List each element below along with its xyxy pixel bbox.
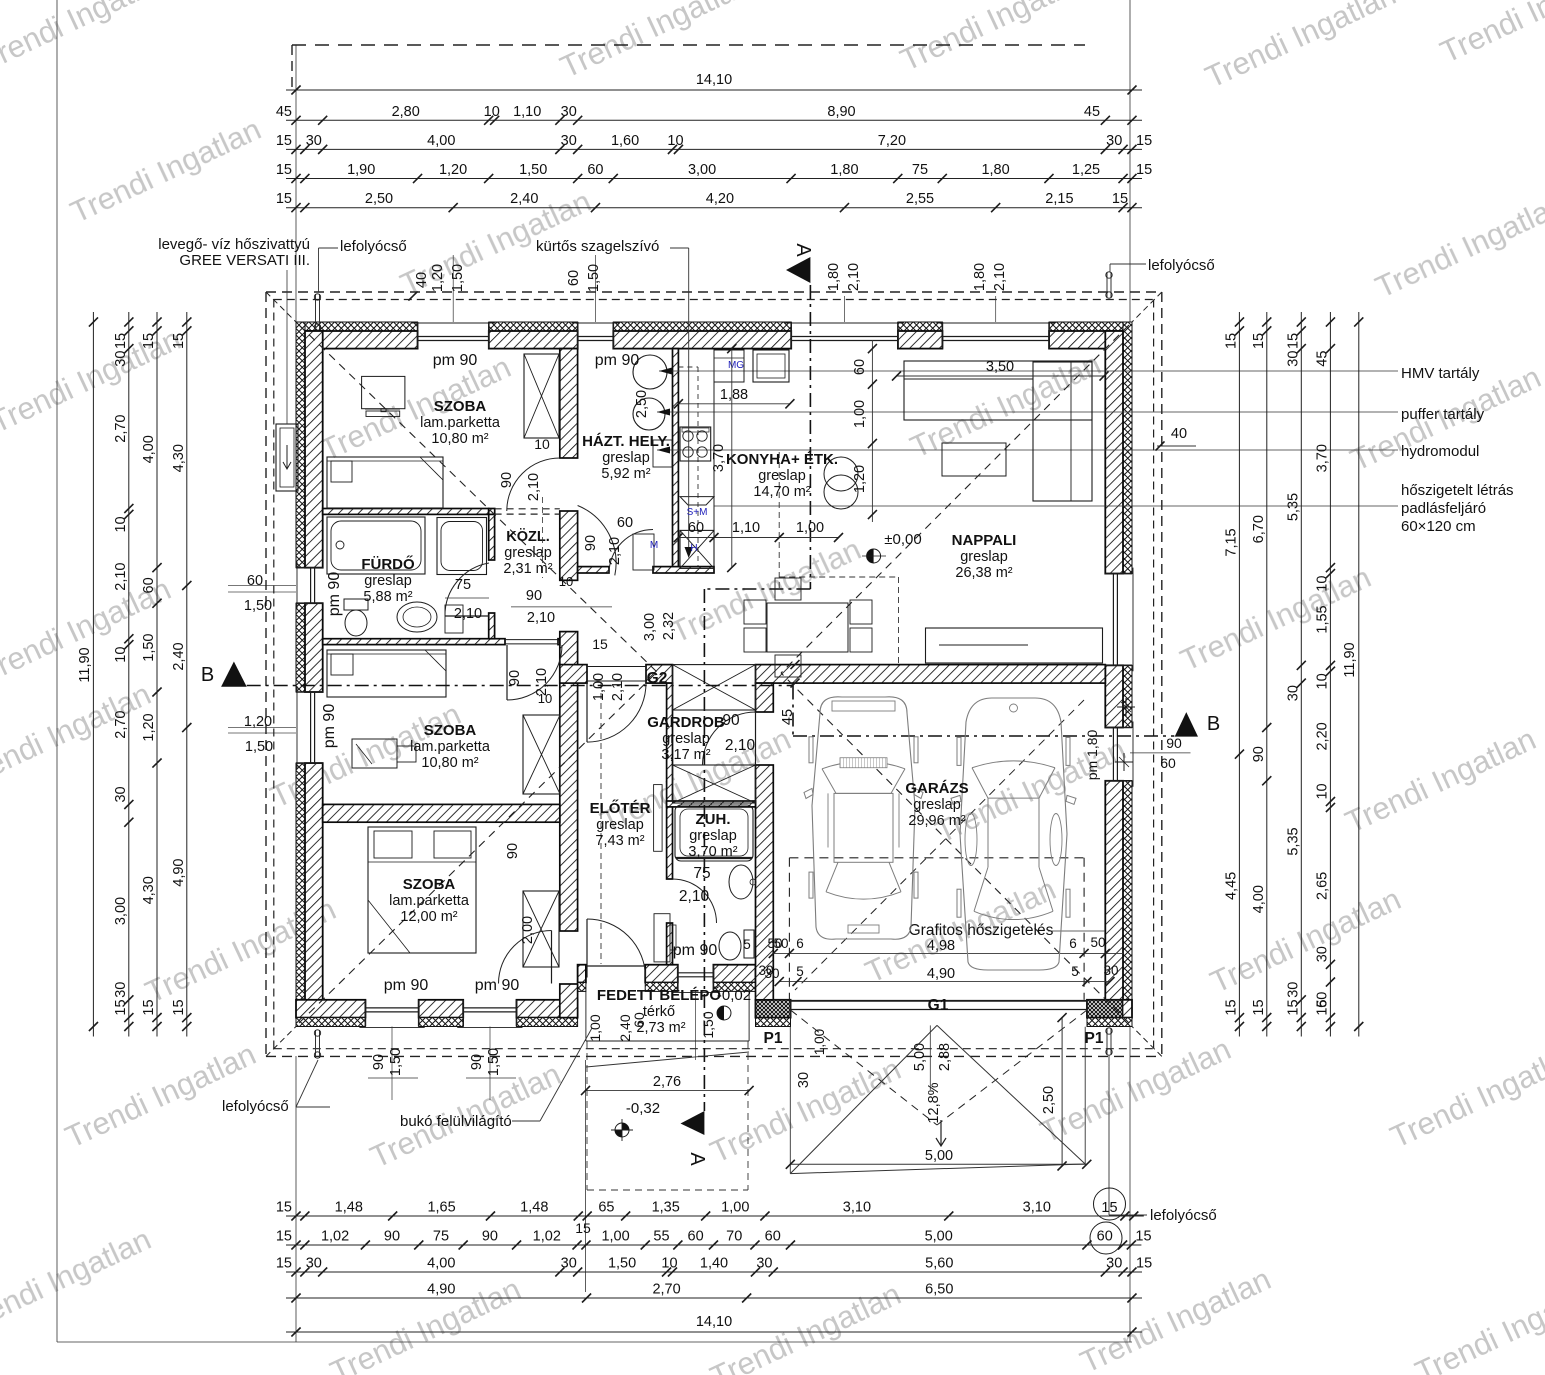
svg-text:2,10: 2,10: [607, 537, 623, 565]
svg-text:2,10: 2,10: [454, 606, 482, 622]
svg-text:B: B: [1207, 713, 1220, 735]
svg-text:2,70: 2,70: [652, 1282, 680, 1298]
svg-text:29,96 m²: 29,96 m²: [908, 813, 965, 829]
svg-text:A: A: [792, 243, 814, 257]
svg-text:2,10: 2,10: [679, 888, 710, 905]
svg-text:greslap: greslap: [596, 817, 644, 833]
svg-text:3,10: 3,10: [1023, 1200, 1051, 1216]
svg-text:2,40: 2,40: [171, 642, 187, 670]
svg-text:15: 15: [276, 1256, 292, 1272]
svg-text:60: 60: [1097, 1229, 1113, 1245]
svg-text:2,10: 2,10: [725, 737, 756, 754]
svg-text:30: 30: [764, 966, 779, 981]
svg-text:30: 30: [561, 104, 577, 120]
svg-text:levegő- víz hőszivattyú: levegő- víz hőszivattyú: [158, 236, 310, 253]
svg-text:1,00: 1,00: [812, 1029, 827, 1055]
svg-text:55: 55: [653, 1229, 669, 1245]
svg-text:2,50: 2,50: [1041, 1086, 1057, 1114]
svg-text:1,02: 1,02: [321, 1229, 349, 1245]
svg-text:15: 15: [592, 636, 608, 652]
svg-text:5,35: 5,35: [1285, 827, 1301, 855]
svg-text:pm 90: pm 90: [321, 704, 338, 749]
svg-text:1,80: 1,80: [972, 263, 988, 291]
svg-text:5: 5: [796, 964, 804, 979]
svg-text:15: 15: [141, 333, 157, 349]
svg-text:greslap: greslap: [662, 731, 710, 747]
svg-text:2,50: 2,50: [634, 390, 650, 418]
svg-text:2,10: 2,10: [992, 263, 1008, 291]
svg-text:HÁZT. HELY.: HÁZT. HELY.: [582, 433, 670, 450]
svg-text:45: 45: [1084, 104, 1100, 120]
svg-text:2,50: 2,50: [365, 191, 393, 207]
svg-text:4,30: 4,30: [171, 444, 187, 472]
svg-text:3,00: 3,00: [113, 897, 129, 925]
svg-text:1,50: 1,50: [519, 162, 547, 178]
svg-text:75: 75: [433, 1229, 449, 1245]
svg-text:2,20: 2,20: [1314, 722, 1330, 750]
svg-text:8,90: 8,90: [827, 104, 855, 120]
svg-text:30: 30: [1285, 982, 1301, 998]
svg-text:10: 10: [534, 436, 550, 452]
svg-text:4,00: 4,00: [427, 133, 455, 149]
svg-text:±0,00: ±0,00: [884, 531, 921, 548]
svg-text:2,10: 2,10: [526, 473, 542, 501]
svg-text:90: 90: [505, 843, 521, 859]
svg-text:GARDROB: GARDROB: [647, 714, 725, 731]
svg-text:10: 10: [1314, 783, 1330, 799]
svg-text:10: 10: [113, 647, 129, 663]
svg-text:14,70 m²: 14,70 m²: [753, 484, 810, 500]
svg-text:3,50: 3,50: [986, 359, 1014, 375]
svg-text:pm 90: pm 90: [326, 572, 343, 617]
svg-text:90: 90: [482, 1229, 498, 1245]
svg-text:1,02: 1,02: [533, 1229, 561, 1245]
svg-text:pm 90: pm 90: [595, 352, 640, 369]
svg-text:1,35: 1,35: [652, 1200, 680, 1216]
svg-text:SZOBA: SZOBA: [403, 876, 456, 893]
svg-text:12,8%: 12,8%: [926, 1082, 942, 1123]
svg-text:1,00: 1,00: [796, 520, 824, 536]
svg-text:NAPPALI: NAPPALI: [952, 532, 1017, 549]
svg-text:15: 15: [113, 333, 129, 349]
svg-text:15: 15: [1223, 999, 1239, 1015]
svg-text:30: 30: [306, 1256, 322, 1272]
svg-text:1,50: 1,50: [141, 633, 157, 661]
svg-text:2,32: 2,32: [661, 612, 677, 640]
svg-text:15: 15: [113, 999, 129, 1015]
svg-text:3,70: 3,70: [711, 444, 727, 472]
svg-text:1,00: 1,00: [852, 400, 868, 428]
svg-text:30: 30: [1314, 946, 1330, 962]
svg-text:15: 15: [1285, 333, 1301, 349]
svg-text:26,38 m²: 26,38 m²: [955, 565, 1012, 581]
svg-text:15: 15: [1136, 1256, 1152, 1272]
svg-text:45: 45: [1314, 351, 1330, 367]
svg-text:1,65: 1,65: [427, 1200, 455, 1216]
svg-text:1,90: 1,90: [347, 162, 375, 178]
svg-text:30: 30: [1106, 133, 1122, 149]
svg-text:1,20: 1,20: [244, 714, 272, 730]
svg-text:5,60: 5,60: [925, 1256, 953, 1272]
svg-text:4,90: 4,90: [927, 966, 955, 982]
svg-text:H: H: [690, 543, 697, 554]
svg-text:10: 10: [1314, 673, 1330, 689]
svg-text:Grafitos hőszigetelés: Grafitos hőszigetelés: [909, 922, 1054, 939]
svg-text:SZOBA: SZOBA: [424, 722, 477, 739]
svg-text:15: 15: [575, 1220, 591, 1236]
svg-text:60: 60: [852, 359, 868, 375]
svg-text:térkő: térkő: [643, 1004, 675, 1020]
svg-text:60: 60: [765, 1229, 781, 1245]
svg-text:11,90: 11,90: [1342, 642, 1358, 677]
svg-text:1,20: 1,20: [439, 162, 467, 178]
svg-text:15: 15: [1285, 999, 1301, 1015]
svg-text:60: 60: [247, 573, 263, 589]
svg-text:2,55: 2,55: [906, 191, 934, 207]
svg-text:1,40: 1,40: [700, 1256, 728, 1272]
svg-text:1,88: 1,88: [720, 387, 748, 403]
svg-text:10: 10: [484, 104, 500, 120]
svg-text:10: 10: [113, 516, 129, 532]
svg-text:15: 15: [1314, 999, 1330, 1015]
svg-text:1,50: 1,50: [608, 1256, 636, 1272]
svg-text:1,60: 1,60: [611, 133, 639, 149]
svg-text:10: 10: [1314, 576, 1330, 592]
svg-text:5,92 m²: 5,92 m²: [601, 466, 650, 482]
svg-text:70: 70: [726, 1229, 742, 1245]
svg-text:75: 75: [912, 162, 928, 178]
svg-text:S+M: S+M: [687, 507, 708, 518]
svg-text:lefolyócső: lefolyócső: [1150, 1207, 1217, 1224]
svg-text:75: 75: [455, 577, 471, 593]
svg-text:puffer tartály: puffer tartály: [1401, 406, 1485, 423]
svg-text:2,10: 2,10: [527, 610, 555, 626]
svg-text:pm 90: pm 90: [433, 352, 478, 369]
svg-text:60: 60: [631, 1012, 647, 1028]
svg-text:15: 15: [171, 333, 187, 349]
svg-text:40: 40: [414, 272, 430, 288]
svg-text:4,00: 4,00: [141, 435, 157, 463]
svg-text:1,50: 1,50: [244, 598, 272, 614]
svg-text:75: 75: [693, 865, 710, 882]
svg-text:60: 60: [1160, 755, 1176, 771]
svg-text:30: 30: [306, 133, 322, 149]
svg-text:greslap: greslap: [364, 573, 412, 589]
svg-text:1,10: 1,10: [513, 104, 541, 120]
svg-text:1,80: 1,80: [981, 162, 1009, 178]
svg-text:1,80: 1,80: [830, 162, 858, 178]
svg-text:2,80: 2,80: [392, 104, 420, 120]
svg-text:60: 60: [141, 577, 157, 593]
svg-text:60×120 cm: 60×120 cm: [1401, 518, 1476, 535]
svg-text:3,10: 3,10: [843, 1200, 871, 1216]
svg-text:15: 15: [171, 999, 187, 1015]
svg-text:1,20: 1,20: [141, 713, 157, 741]
svg-text:30: 30: [796, 1072, 812, 1088]
svg-text:15: 15: [1101, 1200, 1117, 1216]
svg-text:3,00: 3,00: [688, 162, 716, 178]
svg-text:2,15: 2,15: [1045, 191, 1073, 207]
svg-text:SZOBA: SZOBA: [434, 398, 487, 415]
svg-text:7,43 m²: 7,43 m²: [595, 833, 644, 849]
svg-text:5,00: 5,00: [925, 1148, 953, 1164]
svg-text:1,55: 1,55: [1314, 605, 1330, 633]
svg-text:30: 30: [756, 1256, 772, 1272]
svg-text:2,76: 2,76: [653, 1074, 681, 1090]
svg-text:3,17 m²: 3,17 m²: [661, 747, 710, 763]
svg-text:45: 45: [780, 709, 796, 725]
svg-text:65: 65: [598, 1200, 614, 1216]
svg-text:14,10: 14,10: [696, 1314, 732, 1330]
svg-text:15: 15: [1112, 191, 1128, 207]
svg-text:90: 90: [1166, 735, 1182, 751]
svg-text:pm 90: pm 90: [673, 942, 718, 959]
svg-text:5,00: 5,00: [912, 1043, 928, 1071]
svg-text:2,65: 2,65: [1314, 872, 1330, 900]
svg-text:greslap: greslap: [758, 468, 806, 484]
svg-text:5,35: 5,35: [1285, 493, 1301, 521]
svg-text:P1: P1: [764, 1030, 783, 1047]
svg-text:5: 5: [1071, 964, 1079, 979]
svg-text:2,70: 2,70: [113, 414, 129, 442]
svg-text:4,30: 4,30: [141, 876, 157, 904]
svg-text:14,10: 14,10: [696, 72, 732, 88]
svg-text:2,88: 2,88: [937, 1043, 953, 1071]
svg-text:P1: P1: [1085, 1030, 1104, 1047]
svg-text:90: 90: [507, 670, 523, 686]
svg-text:30: 30: [113, 982, 129, 998]
svg-text:15: 15: [276, 162, 292, 178]
svg-text:4,90: 4,90: [171, 858, 187, 886]
svg-text:2,10: 2,10: [113, 562, 129, 590]
svg-text:GREE VERSATI III.: GREE VERSATI III.: [179, 252, 310, 269]
svg-text:1,00: 1,00: [591, 673, 607, 701]
svg-text:KONYHA+ ÉTK.: KONYHA+ ÉTK.: [726, 451, 838, 468]
svg-text:1,48: 1,48: [335, 1200, 363, 1216]
svg-text:6: 6: [1069, 936, 1077, 951]
svg-text:90: 90: [469, 1054, 485, 1070]
svg-text:lam.parketta: lam.parketta: [410, 739, 491, 755]
svg-text:30: 30: [113, 351, 129, 367]
svg-text:4,20: 4,20: [706, 191, 734, 207]
svg-text:lefolyócső: lefolyócső: [222, 1098, 289, 1115]
svg-text:FEDETT BELÉPŐ: FEDETT BELÉPŐ: [597, 986, 722, 1004]
svg-text:1,50: 1,50: [700, 1011, 716, 1038]
svg-text:90: 90: [371, 1054, 387, 1070]
svg-text:15: 15: [276, 133, 292, 149]
svg-text:3,70 m²: 3,70 m²: [688, 844, 737, 860]
svg-text:30: 30: [1285, 685, 1301, 701]
svg-text:ELŐTÉR: ELŐTÉR: [590, 799, 651, 817]
svg-text:2,00: 2,00: [520, 916, 536, 944]
svg-text:KÖZL.: KÖZL.: [506, 528, 550, 545]
svg-text:pm 90: pm 90: [384, 977, 429, 994]
svg-text:M: M: [650, 540, 658, 551]
svg-text:30: 30: [1106, 1256, 1122, 1272]
svg-text:90: 90: [526, 588, 542, 604]
svg-text:FÜRDŐ: FÜRDŐ: [361, 555, 415, 573]
svg-text:15: 15: [141, 999, 157, 1015]
svg-text:15: 15: [276, 191, 292, 207]
svg-text:7,15: 7,15: [1223, 528, 1239, 556]
svg-text:G2: G2: [647, 670, 668, 687]
svg-text:greslap: greslap: [960, 549, 1008, 565]
svg-text:10: 10: [661, 1256, 677, 1272]
svg-text:-0,32: -0,32: [626, 1100, 660, 1117]
svg-text:kürtős szagelszívó: kürtős szagelszívó: [536, 238, 659, 255]
svg-text:lam.parketta: lam.parketta: [389, 893, 470, 909]
svg-text:7,20: 7,20: [878, 133, 906, 149]
svg-text:11,90: 11,90: [77, 647, 93, 682]
svg-text:15: 15: [1223, 333, 1239, 349]
svg-text:6: 6: [796, 936, 804, 951]
svg-text:60: 60: [566, 270, 582, 286]
svg-text:greslap: greslap: [913, 797, 961, 813]
svg-text:4,98: 4,98: [927, 938, 955, 954]
svg-text:2,70: 2,70: [113, 710, 129, 738]
svg-text:greslap: greslap: [689, 828, 737, 844]
svg-text:60: 60: [688, 1229, 704, 1245]
svg-text:50: 50: [1090, 935, 1105, 950]
svg-text:5,88 m²: 5,88 m²: [363, 589, 412, 605]
svg-text:4,00: 4,00: [427, 1256, 455, 1272]
svg-text:1,20: 1,20: [852, 465, 868, 493]
svg-text:4,90: 4,90: [427, 1282, 455, 1298]
svg-text:hydromodul: hydromodul: [1401, 443, 1479, 460]
svg-text:hőszigetelt létrás: hőszigetelt létrás: [1401, 482, 1514, 499]
svg-text:lefolyócső: lefolyócső: [1148, 257, 1215, 274]
svg-text:1,50: 1,50: [486, 1048, 502, 1076]
svg-text:10,80 m²: 10,80 m²: [421, 755, 478, 771]
svg-text:90: 90: [384, 1229, 400, 1245]
svg-text:1,00: 1,00: [601, 1229, 629, 1245]
svg-text:90: 90: [499, 472, 515, 488]
svg-text:10,80 m²: 10,80 m²: [431, 431, 488, 447]
svg-text:15: 15: [1136, 133, 1152, 149]
svg-text:2,10: 2,10: [610, 673, 626, 701]
svg-text:3,70: 3,70: [1314, 444, 1330, 472]
svg-text:15: 15: [1251, 333, 1267, 349]
svg-text:90: 90: [1251, 746, 1267, 762]
svg-text:15: 15: [1135, 1229, 1151, 1245]
svg-text:40: 40: [1171, 426, 1187, 442]
svg-text:2,40: 2,40: [510, 191, 538, 207]
svg-text:lefolyócső: lefolyócső: [340, 238, 407, 255]
svg-text:padlásfeljáró: padlásfeljáró: [1401, 500, 1486, 517]
svg-text:6,70: 6,70: [1251, 515, 1267, 543]
svg-text:HMV tartály: HMV tartály: [1401, 365, 1480, 382]
svg-text:1,20: 1,20: [430, 264, 446, 292]
svg-text:90: 90: [722, 712, 740, 729]
svg-text:15: 15: [1251, 999, 1267, 1015]
svg-text:15: 15: [276, 1229, 292, 1245]
svg-text:1,80: 1,80: [826, 263, 842, 291]
svg-text:B: B: [201, 664, 214, 686]
svg-text:greslap: greslap: [504, 545, 552, 561]
svg-text:15: 15: [276, 1200, 292, 1216]
svg-text:30: 30: [561, 1256, 577, 1272]
svg-text:1,50: 1,50: [245, 739, 273, 755]
svg-text:4,45: 4,45: [1223, 872, 1239, 900]
svg-text:90: 90: [583, 535, 599, 551]
svg-text:MG: MG: [728, 360, 744, 371]
svg-text:15: 15: [1136, 162, 1152, 178]
svg-text:2,10: 2,10: [846, 263, 862, 291]
svg-text:ZUH.: ZUH.: [696, 811, 731, 828]
svg-text:2,31 m²: 2,31 m²: [503, 561, 552, 577]
svg-text:1,10: 1,10: [732, 520, 760, 536]
svg-text:5: 5: [743, 937, 751, 952]
svg-text:50: 50: [767, 936, 782, 951]
svg-text:1,48: 1,48: [520, 1200, 548, 1216]
svg-text:45: 45: [276, 104, 292, 120]
svg-text:5,00: 5,00: [925, 1229, 953, 1245]
svg-text:60: 60: [617, 515, 633, 531]
svg-text:lam.parketta: lam.parketta: [420, 415, 501, 431]
svg-text:G1: G1: [928, 997, 949, 1014]
svg-text:12,00 m²: 12,00 m²: [400, 909, 457, 925]
svg-text:-0,02: -0,02: [717, 987, 751, 1004]
svg-text:greslap: greslap: [602, 450, 650, 466]
svg-text:30: 30: [1103, 963, 1118, 978]
svg-text:1,50: 1,50: [450, 264, 466, 292]
svg-text:1,00: 1,00: [721, 1200, 749, 1216]
svg-text:10: 10: [667, 133, 683, 149]
svg-text:4,00: 4,00: [1251, 885, 1267, 913]
svg-text:GARÁZS: GARÁZS: [905, 780, 968, 797]
svg-text:10: 10: [538, 691, 552, 706]
svg-text:30: 30: [561, 133, 577, 149]
svg-text:pm 90: pm 90: [475, 977, 520, 994]
svg-text:60: 60: [688, 520, 704, 536]
svg-text:3,00: 3,00: [642, 613, 658, 641]
svg-text:pm 1,80: pm 1,80: [1084, 729, 1100, 780]
svg-text:10: 10: [559, 574, 573, 589]
svg-text:1,00: 1,00: [587, 1014, 603, 1041]
svg-text:1,25: 1,25: [1072, 162, 1100, 178]
svg-text:30: 30: [113, 786, 129, 802]
svg-text:1,50: 1,50: [586, 264, 602, 292]
svg-text:1,50: 1,50: [388, 1048, 404, 1076]
svg-text:A: A: [686, 1152, 708, 1166]
svg-text:bukó felülvilágító: bukó felülvilágító: [400, 1113, 512, 1130]
svg-text:6,50: 6,50: [925, 1282, 953, 1298]
svg-text:60: 60: [587, 162, 603, 178]
svg-text:30: 30: [1285, 351, 1301, 367]
